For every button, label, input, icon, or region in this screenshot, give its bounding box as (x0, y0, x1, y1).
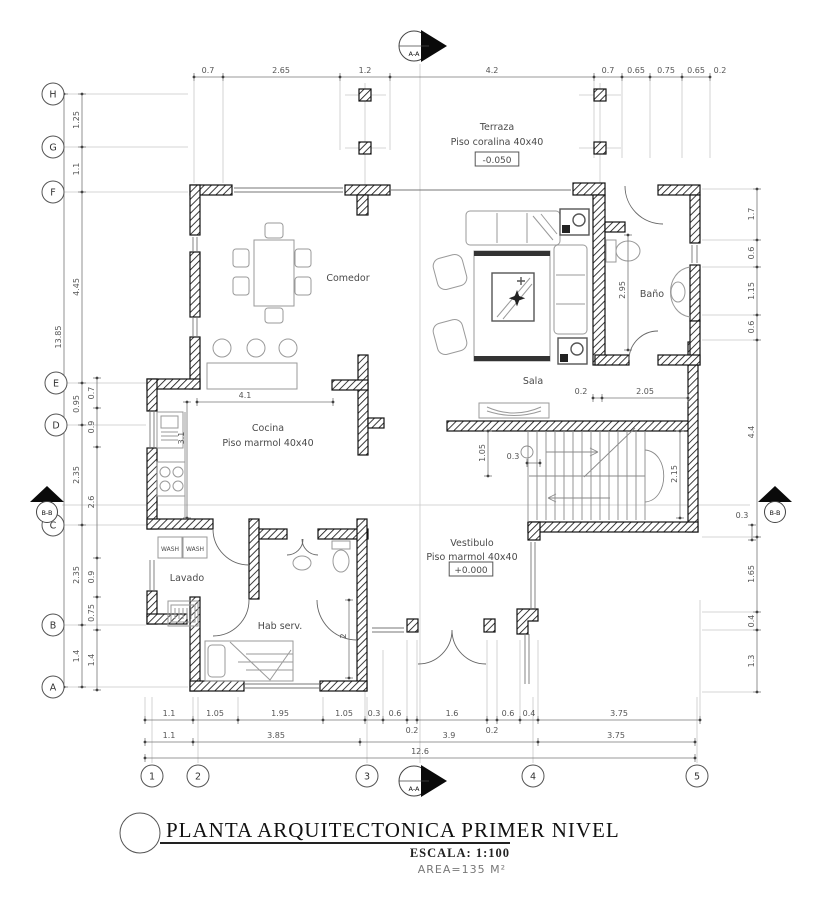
dim-label: 2.35 (72, 566, 81, 584)
dim-tick-dot (81, 524, 84, 527)
marker-label: B-B (41, 509, 52, 517)
dim-tick-dot (751, 539, 754, 542)
wall (249, 519, 259, 599)
dim-tick-dot (756, 629, 759, 632)
dim-label: 3.75 (610, 709, 628, 718)
staircase (521, 428, 664, 522)
dim-tick-dot (96, 557, 99, 560)
main-bathroom-fixtures (606, 240, 690, 317)
dim-tick-dot (756, 611, 759, 614)
living-room-furniture (431, 209, 589, 418)
dim-label: 1.05 (206, 709, 224, 718)
dim-label: 1.3 (747, 655, 756, 668)
sheet-area: AREA=135 M² (418, 863, 506, 876)
dim-label: 1.4 (72, 650, 81, 663)
dim-tick-dot (81, 686, 84, 689)
dim-tick-dot (486, 719, 489, 722)
stair-turn-arc (645, 450, 664, 502)
dim-tick-dot (193, 76, 196, 79)
title-bubble (120, 813, 160, 853)
dim-line: 4.1 (196, 391, 335, 406)
grid-bubble-label: H (49, 90, 56, 101)
dim-line: 2 (339, 599, 353, 680)
wall (658, 355, 700, 365)
dim-line: 0.70.92.60.90.751.4 (87, 377, 101, 692)
dim-label: 0.2 (575, 387, 588, 396)
service-bedroom-bed (205, 641, 293, 681)
dim-tick-dot (681, 76, 684, 79)
wall (345, 185, 390, 195)
dim-label: 2 (339, 633, 348, 638)
dim-tick-dot (699, 719, 702, 722)
dim-tick-dot (526, 462, 529, 465)
wall (528, 522, 540, 540)
dim-tick-dot (756, 691, 759, 694)
dim-line: 1.05 (478, 430, 492, 478)
dim-label: 1.1 (163, 709, 176, 718)
grid-bubble-label: A (50, 683, 57, 694)
dim-tick-dot (81, 382, 84, 385)
dim-tick-dot (96, 446, 99, 449)
dim-label: 0.7 (87, 387, 96, 400)
dim-tick-dot (222, 76, 225, 79)
dim-tick-dot (416, 719, 419, 722)
dim-label: 0.6 (747, 321, 756, 334)
dim-label: 4.45 (72, 278, 81, 296)
wall (332, 380, 368, 390)
dim-label: 2.35 (72, 466, 81, 484)
axis-lines (62, 64, 753, 763)
room-annotations: TerrazaPiso coralina 40x40ComedorSalaBañ… (161, 122, 664, 632)
dim-label: 3.9 (443, 731, 456, 740)
dim-label: 1.6 (446, 709, 459, 718)
dim-label: 2.6 (87, 496, 96, 509)
dim-tick-dot (756, 239, 759, 242)
dim-tick-dot (359, 741, 362, 744)
wall (190, 252, 200, 317)
stair-direction-arrows (546, 428, 635, 502)
wall (190, 185, 200, 235)
dim-tick-dot (496, 719, 499, 722)
room-label: Piso marmol 40x40 (222, 438, 313, 449)
dining-table-set (233, 223, 311, 323)
dim-label: 1.1 (72, 163, 81, 176)
wall (190, 681, 244, 691)
dim-label: 3.85 (267, 731, 285, 740)
dim-tick-dot (751, 524, 754, 527)
dim-line: 0.22.05 (575, 387, 690, 402)
section-marker-A-A: A-A (399, 30, 447, 62)
wall (358, 355, 368, 455)
wall (357, 195, 368, 215)
dim-label: 1.25 (72, 111, 81, 129)
dim-tick-dot (537, 741, 540, 744)
marker-arrow (30, 486, 64, 502)
level-label: +0.000 (454, 566, 488, 576)
wall (658, 185, 700, 195)
terrace-column (359, 142, 371, 154)
dim-line: 2.15 (670, 430, 684, 520)
wall (147, 379, 157, 411)
wall (147, 519, 213, 529)
dim-label: 1.15 (747, 282, 756, 300)
dim-tick-dot (144, 719, 147, 722)
grid-bubble-label: F (50, 188, 55, 199)
grid-bubble-label: E (53, 379, 59, 390)
dim-label: 12.6 (411, 747, 429, 756)
wall (147, 448, 157, 529)
marker-label: B-B (769, 509, 780, 517)
dim-label: 0.9 (87, 571, 96, 584)
section-marker-B-B: B-B (758, 486, 792, 523)
dim-tick-dot (237, 719, 240, 722)
top-guides (194, 81, 710, 183)
dim-tick-dot (756, 314, 759, 317)
wall (528, 522, 698, 532)
dim-label: 0.3 (736, 511, 749, 520)
dimension-annotations: 0.72.651.24.20.70.650.750.650.213.851.25… (54, 66, 761, 762)
room-label: Baño (640, 289, 664, 300)
grid-bubble-label: D (52, 421, 59, 432)
porch-column (484, 619, 495, 632)
wall (690, 265, 700, 321)
breakfast-bar (207, 339, 297, 389)
dim-tick-dot (96, 407, 99, 410)
dim-label: 0.7 (202, 66, 215, 75)
dim-tick-dot (332, 401, 335, 404)
level-label: -0.050 (482, 156, 511, 166)
dim-label: 1.4 (87, 654, 96, 667)
dim-label: 2.15 (670, 465, 679, 483)
grid-bubble-label: G (49, 143, 56, 154)
bottom-guides (145, 600, 700, 716)
room-label: Piso marmol 40x40 (426, 552, 517, 563)
dim-tick-dot (81, 424, 84, 427)
dim-label: 3.75 (607, 731, 625, 740)
wall (593, 195, 605, 365)
dim-tick-dot (339, 76, 342, 79)
dim-tick-dot (601, 397, 604, 400)
dim-label: 1.05 (335, 709, 353, 718)
grid-bubble-label: 3 (364, 772, 370, 783)
dim-line: 0.3 (507, 452, 542, 467)
dim-label: 0.6 (389, 709, 402, 718)
dim-tick-dot (81, 93, 84, 96)
dim-label: 0.4 (747, 615, 756, 628)
dim-tick-dot (186, 517, 189, 520)
dim-label: 0.75 (657, 66, 675, 75)
room-label: Piso coralina 40x40 (451, 137, 544, 148)
dim-tick-dot (687, 397, 690, 400)
dim-tick-dot (382, 719, 385, 722)
dim-tick-dot (709, 76, 712, 79)
dim-label: 2.05 (636, 387, 654, 396)
dim-label: 1.1 (163, 731, 176, 740)
room-label: Lavado (170, 573, 205, 584)
wall (690, 195, 700, 243)
grid-bubble-label: 1 (149, 772, 155, 783)
dim-tick-dot (196, 401, 199, 404)
room-label: Sala (523, 376, 543, 387)
sheet-title: PLANTA ARQUITECTONICA PRIMER NIVEL (166, 818, 620, 842)
room-label: Cocina (252, 423, 284, 434)
dim-tick-dot (756, 188, 759, 191)
dim-label: 1.2 (359, 66, 372, 75)
title-block: PLANTA ARQUITECTONICA PRIMER NIVEL ESCAL… (120, 813, 620, 876)
dim-line: 2.95 (618, 234, 632, 352)
dim-label: 2.65 (272, 66, 290, 75)
wall (595, 355, 629, 365)
wall (447, 421, 693, 431)
dim-label: 2.95 (618, 281, 627, 299)
dim-label: 0.75 (87, 604, 96, 622)
sheet-scale: ESCALA: 1:100 (410, 846, 510, 860)
porch-column (407, 619, 418, 632)
dim-tick-dot (364, 719, 367, 722)
dim-tick-dot (627, 349, 630, 352)
marker-label: A-A (409, 785, 421, 793)
dim-tick-dot (539, 462, 542, 465)
dim-line: 0.72.651.24.20.70.650.750.650.2 (193, 66, 727, 81)
dim-tick-dot (144, 757, 147, 760)
dim-tick-dot (389, 76, 392, 79)
dim-tick-dot (592, 397, 595, 400)
grid-bubble-label: 4 (530, 772, 536, 783)
dim-tick-dot (621, 76, 624, 79)
section-markers: A-AA-AB-BB-B (30, 30, 792, 797)
dim-tick-dot (186, 401, 189, 404)
dim-label: 4.4 (747, 426, 756, 439)
dim-label: 4.2 (486, 66, 499, 75)
dim-tick-dot (679, 517, 682, 520)
marker-label: A-A (409, 50, 421, 58)
dim-tick-dot (406, 719, 409, 722)
stair-treads (528, 431, 645, 522)
stair-start-post (521, 446, 533, 458)
dim-tick-dot (348, 599, 351, 602)
dim-label: 0.65 (627, 66, 645, 75)
dim-tick-dot (192, 719, 195, 722)
dim-tick-dot (96, 689, 99, 692)
dim-tick-dot (694, 757, 697, 760)
grid-bubble-label: 5 (694, 772, 700, 783)
room-label: Comedor (326, 273, 369, 284)
dim-label: 1.95 (271, 709, 289, 718)
dim-line: 3.1 (177, 401, 191, 520)
wall (573, 183, 605, 195)
dim-tick-dot (192, 741, 195, 744)
floor-plan-sheet: 0.72.651.24.20.70.650.750.650.213.851.25… (0, 0, 826, 900)
dim-label: 1.7 (747, 208, 756, 221)
grid-bubble-label: B (50, 621, 57, 632)
dim-label: 0.4 (523, 709, 536, 718)
wall (320, 681, 367, 691)
dim-label: 0.65 (687, 66, 705, 75)
room-label: Vestibulo (450, 538, 494, 549)
dim-tick-dot (96, 596, 99, 599)
dim-tick-dot (487, 430, 490, 433)
dim-tick-dot (144, 741, 147, 744)
dim-label: 1.05 (478, 444, 487, 462)
dim-tick-dot (756, 339, 759, 342)
terrace-column (594, 142, 606, 154)
dim-label: 0.9 (87, 421, 96, 434)
dim-tick-dot (694, 741, 697, 744)
floor-plan-drawing: 0.72.651.24.20.70.650.750.650.213.851.25… (0, 0, 826, 900)
marker-arrow (758, 486, 792, 502)
dim-tick-dot (96, 629, 99, 632)
terrace-column (359, 89, 371, 101)
dim-label: 0.2 (486, 726, 499, 735)
dim-tick-dot (487, 475, 490, 478)
dim-tick-dot (679, 430, 682, 433)
kitchen-appliances (157, 412, 185, 519)
dim-tick-dot (537, 719, 540, 722)
dim-tick-dot (627, 234, 630, 237)
dim-tick-dot (519, 719, 522, 722)
room-label: WASH (161, 546, 179, 553)
porch-corner-column (517, 609, 538, 634)
dim-tick-dot (593, 76, 596, 79)
dim-label: 1.65 (747, 565, 756, 583)
wall (688, 342, 698, 532)
room-label: WASH (186, 546, 204, 553)
dim-label: 3.1 (177, 432, 186, 445)
room-label: Hab serv. (258, 621, 303, 632)
dim-label: 0.2 (406, 726, 419, 735)
wall (368, 418, 384, 428)
wall (605, 222, 625, 232)
wall (357, 519, 367, 691)
left-guides (64, 94, 188, 687)
room-label: Terraza (479, 122, 514, 133)
dim-label: 0.95 (72, 395, 81, 413)
dim-line: 1.251.14.450.952.352.351.4 (72, 93, 86, 689)
dim-label: 0.2 (714, 66, 727, 75)
dim-tick-dot (756, 266, 759, 269)
terrace-column (594, 89, 606, 101)
dim-tick-dot (649, 76, 652, 79)
right-guides (702, 189, 753, 692)
dim-label: 0.3 (368, 709, 381, 718)
dim-tick-dot (81, 624, 84, 627)
dim-tick-dot (322, 719, 325, 722)
dim-tick-dot (81, 191, 84, 194)
dim-tick-dot (81, 146, 84, 149)
dim-label: 4.1 (239, 391, 252, 400)
dim-label: 0.6 (502, 709, 515, 718)
dim-tick-dot (96, 377, 99, 380)
grid-bubble-label: 2 (195, 772, 201, 783)
dim-label: 0.7 (602, 66, 615, 75)
dim-label: 13.85 (54, 326, 63, 349)
dim-line: 1.70.61.150.64.41.650.41.3 (747, 188, 761, 694)
dim-tick-dot (756, 536, 759, 539)
wall (259, 529, 287, 539)
section-marker-A-A: A-A (399, 765, 447, 797)
dim-label: 0.3 (507, 452, 520, 461)
walls (147, 89, 700, 691)
dim-tick-dot (348, 677, 351, 680)
dim-label: 0.6 (747, 247, 756, 260)
